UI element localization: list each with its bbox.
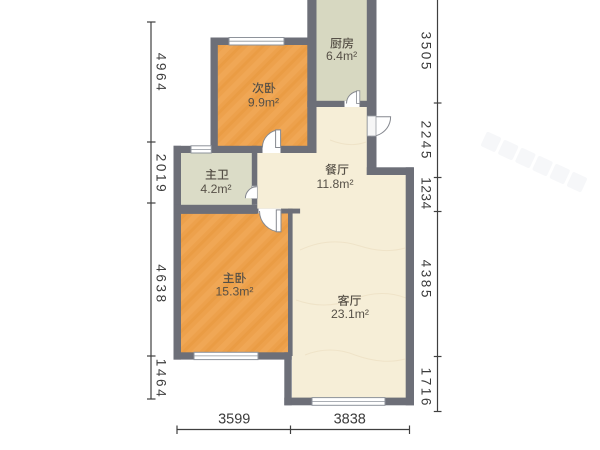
svg-text:1234: 1234 <box>419 177 434 209</box>
svg-text:15.3m²: 15.3m² <box>216 284 254 298</box>
svg-text:4.2m²: 4.2m² <box>200 182 231 196</box>
svg-text:2019: 2019 <box>154 154 169 194</box>
svg-text:9.9m²: 9.9m² <box>248 95 279 109</box>
svg-text:23.1m²: 23.1m² <box>331 307 369 321</box>
svg-text:11.8m²: 11.8m² <box>316 177 353 191</box>
svg-text:3838: 3838 <box>334 411 366 427</box>
svg-text:4385: 4385 <box>419 260 434 300</box>
svg-text:6.4m²: 6.4m² <box>326 49 357 63</box>
svg-text:4964: 4964 <box>154 53 169 93</box>
svg-text:1716: 1716 <box>419 368 434 408</box>
svg-text:4638: 4638 <box>154 264 169 304</box>
svg-text:3599: 3599 <box>218 411 250 427</box>
svg-text:1464: 1464 <box>154 359 169 399</box>
svg-text:3505: 3505 <box>419 32 434 72</box>
svg-text:2245: 2245 <box>419 121 434 161</box>
